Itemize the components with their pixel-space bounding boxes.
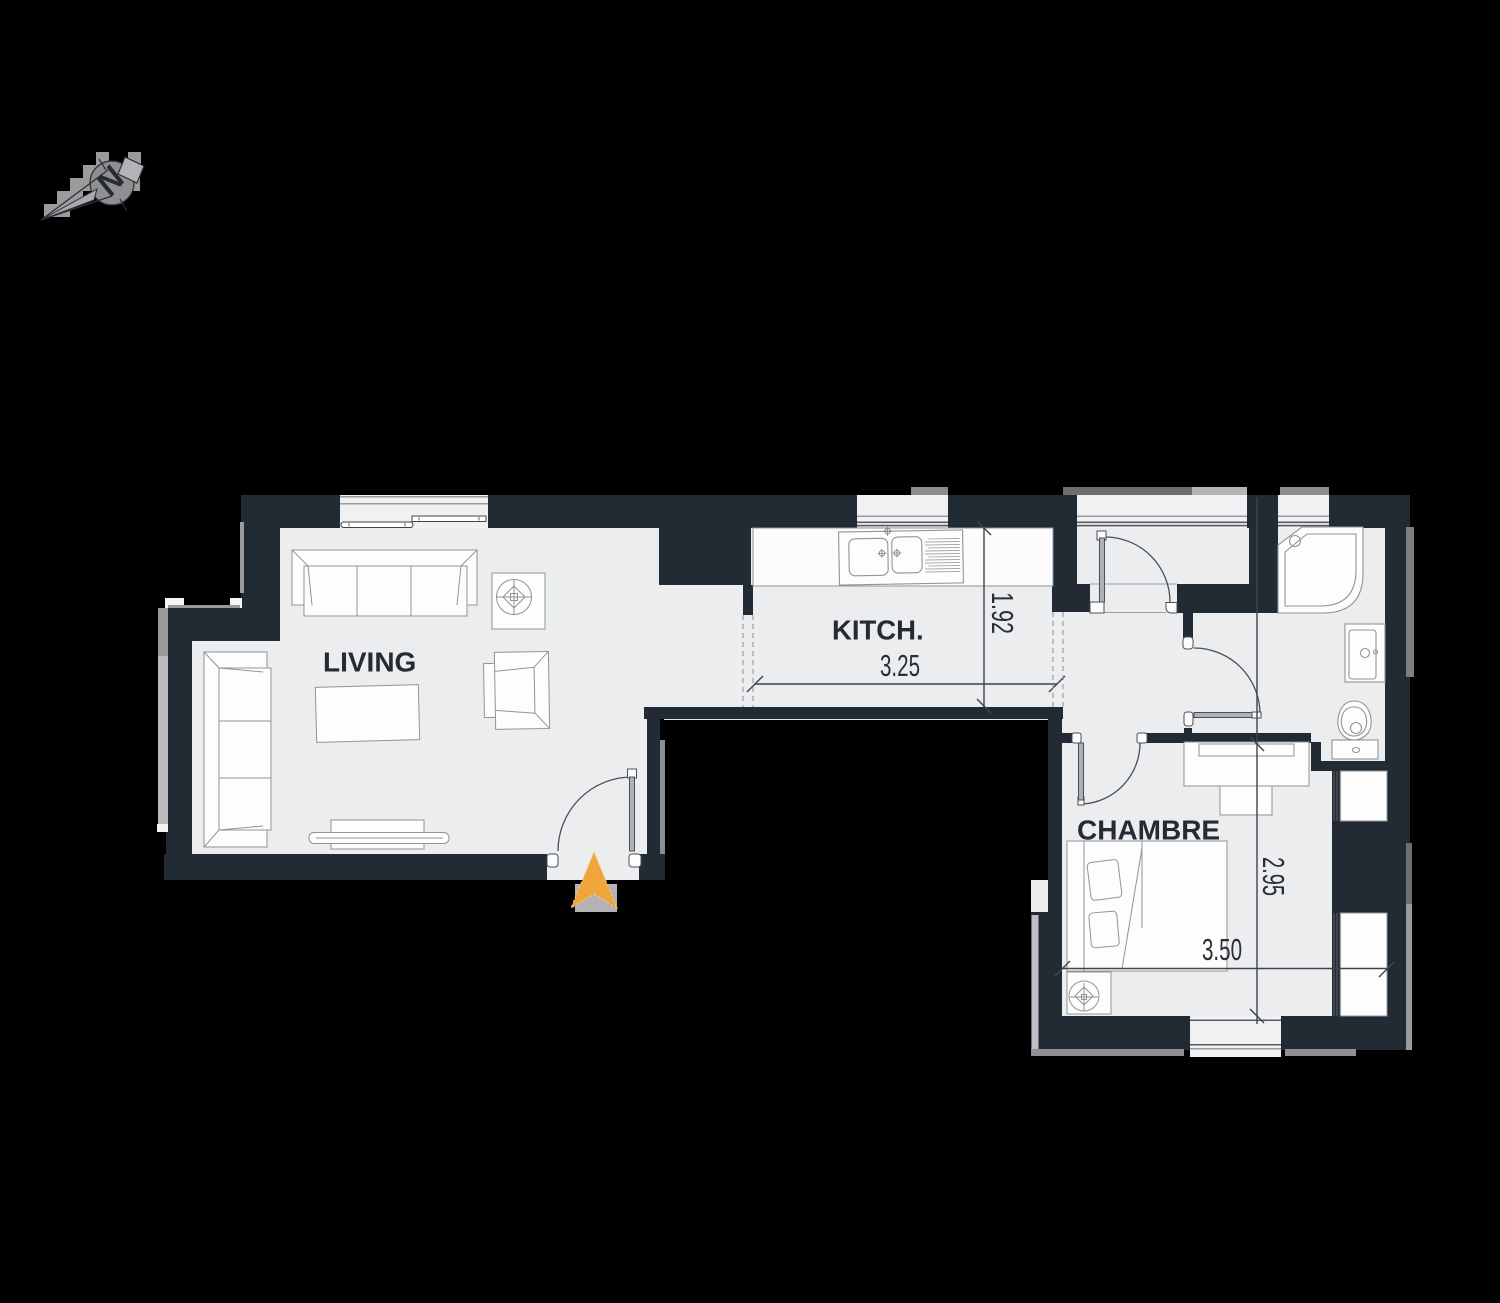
svg-text:2.95: 2.95 bbox=[1256, 857, 1291, 896]
svg-text:3.50: 3.50 bbox=[1202, 932, 1242, 967]
svg-text:CHAMBRE: CHAMBRE bbox=[1077, 815, 1220, 846]
svg-text:1.92: 1.92 bbox=[985, 592, 1020, 634]
svg-text:3.25: 3.25 bbox=[880, 648, 920, 683]
svg-text:LIVING: LIVING bbox=[323, 647, 416, 678]
svg-text:KITCH.: KITCH. bbox=[832, 615, 924, 646]
